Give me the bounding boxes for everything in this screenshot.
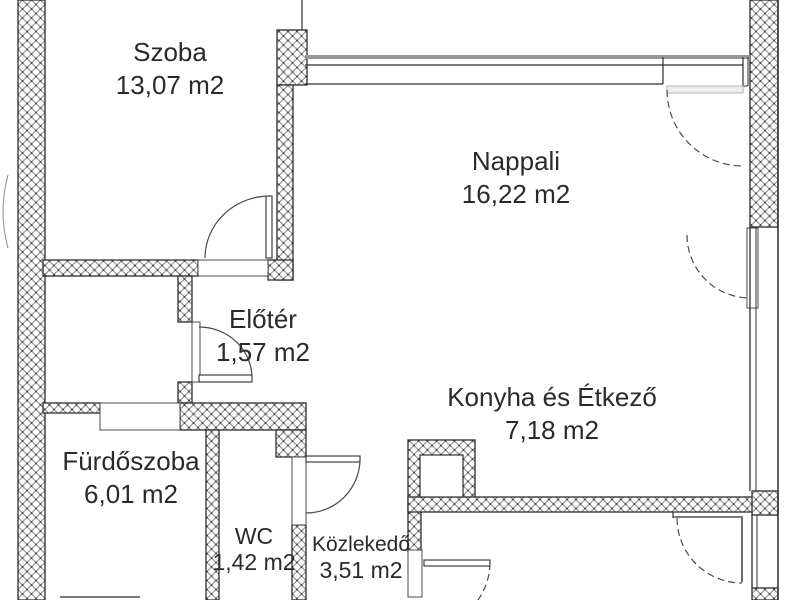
door-frame-eloter	[192, 322, 200, 382]
passage-frame-furdoszoba	[100, 403, 180, 430]
room-area: 1,42 m2	[212, 549, 295, 575]
room-name: Nappali	[462, 145, 570, 178]
wall-wc-right-pillar	[276, 430, 306, 457]
wall-right-stub-middle	[752, 491, 778, 515]
left-edge-arc	[3, 175, 8, 248]
duct-core	[420, 455, 463, 497]
door-arc-wc	[306, 459, 360, 513]
door-frame-szoba	[198, 260, 268, 276]
door-arc-balcony	[687, 235, 750, 298]
entrance-door-leaf	[667, 86, 743, 93]
room-label-szoba: Szoba 13,07 m2	[116, 36, 224, 102]
wall-eloter-left-upper	[178, 276, 192, 322]
floorplan-canvas: Szoba 13,07 m2 Nappali 16,22 m2 Előtér 1…	[0, 0, 800, 600]
door-arc-entrance	[667, 90, 743, 166]
room-label-kozlekedo: Közlekedő 3,51 m2	[312, 532, 410, 585]
room-area: 1,57 m2	[216, 336, 310, 369]
room-label-wc: WC 1,42 m2	[212, 523, 295, 576]
wall-eloter-left-lower	[178, 382, 192, 403]
wall-szoba-right-pillar	[277, 30, 307, 85]
room-area: 16,22 m2	[462, 178, 570, 211]
room-name: Előtér	[216, 303, 310, 336]
room-area: 13,07 m2	[116, 69, 224, 102]
door-frame-wc	[292, 457, 306, 525]
room-name: Konyha és Étkező	[447, 381, 657, 414]
room-label-nappali: Nappali 16,22 m2	[462, 145, 570, 211]
wall-szoba-bottom	[43, 260, 198, 276]
wall-left-outer	[18, 0, 45, 600]
room-area: 3,51 m2	[312, 557, 410, 585]
wall-szoba-right	[277, 85, 293, 280]
wall-right-outer-top	[750, 0, 778, 227]
door-frame-kozlekedo	[408, 550, 422, 597]
wall-furdoszoba-top	[43, 403, 100, 413]
szoba-door-leaf	[266, 196, 272, 258]
room-name: Fürdőszoba	[62, 445, 199, 478]
wall-eloter-bottom-block	[180, 403, 306, 430]
room-name: Közlekedő	[312, 532, 410, 557]
door-arc-kozlekedo-room	[478, 563, 490, 600]
room-label-furdoszoba: Fürdőszoba 6,01 m2	[62, 445, 199, 511]
room-label-eloter: Előtér 1,57 m2	[216, 303, 310, 369]
room-name: WC	[212, 523, 295, 549]
room-label-konyha: Konyha és Étkező 7,18 m2	[447, 381, 657, 447]
door-arc-szoba	[205, 196, 270, 258]
wall-konyha-bottom	[408, 497, 778, 512]
door-arc-konyha-room	[677, 518, 742, 583]
wc-door-leaf	[306, 456, 360, 462]
wall-szoba-door-stub	[268, 260, 293, 280]
room-area: 7,18 m2	[447, 414, 657, 447]
eloter-door-leaf	[199, 375, 252, 382]
wall-right-stub-bottom	[752, 588, 778, 600]
room-area: 6,01 m2	[62, 478, 199, 511]
room-name: Szoba	[116, 36, 224, 69]
kozlekedo-door-leaf	[424, 560, 490, 566]
